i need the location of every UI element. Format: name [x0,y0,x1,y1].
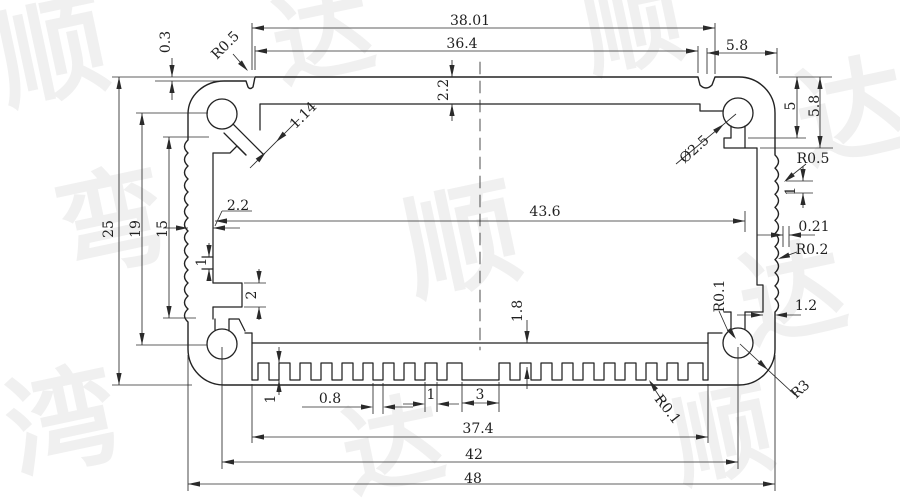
dimension-label: 19 [128,220,144,238]
dimension-label: R0.5 [208,28,243,63]
dimension-label: 1 [194,258,210,267]
dimension-label: 0.21 [798,219,829,235]
dimension-label: R3 [788,377,813,402]
dimension-label: 1 [263,395,279,404]
watermark-glyph: 达 [728,224,856,365]
dimension-label: 2.2 [227,198,249,214]
dimension-label: 38.01 [450,13,490,29]
dimension-label: 2 [244,291,260,300]
dimension-label: 0.3 [158,31,174,53]
cad-drawing-stage: 顺达顺达弯顺达湾达顺 38.0136.45.80.3R0.51.142.2Ø2.… [0,0,900,500]
dimension-label: 0.8 [319,391,341,407]
dimension-label: 15 [155,220,171,238]
watermark-layer: 顺达顺达弯顺达湾达顺 [0,0,900,500]
dimension-label: 25 [101,220,117,238]
dimension-label: 1 [783,187,799,196]
dimension-label: 1.8 [510,300,526,322]
dimension-label: 43.6 [529,204,560,220]
dimension-label: 42 [465,447,483,463]
extrusion-cross-section-drawing: 顺达顺达弯顺达湾达顺 38.0136.45.80.3R0.51.142.2Ø2.… [0,0,900,500]
dimension-label: 3 [476,387,485,403]
dimension-label: 36.4 [446,36,477,52]
dimension-label: 1 [427,387,436,403]
dimension-label: R0.1 [712,280,728,313]
dimension-label: 48 [464,471,482,487]
watermark-glyph: 湾 [0,349,129,497]
dimension-label: R0.2 [796,242,829,258]
watermark-glyph: 顺 [662,369,784,500]
watermark-glyph: 达 [332,379,454,500]
dimension-label: 2.2 [436,79,452,101]
watermark-glyph: 顺 [572,0,694,94]
dimension-label: 1.2 [795,298,817,314]
watermark-glyph: 顺 [392,164,532,319]
dimension-label: 5.8 [807,95,823,117]
watermark-glyph: 达 [262,0,384,104]
dimension-label: 37.4 [462,421,493,437]
watermark-glyph: 顺 [0,0,119,127]
dimension-label: 5.8 [726,38,748,54]
dimension-label: R0.5 [797,151,830,167]
dimension-label: 5 [783,102,799,111]
